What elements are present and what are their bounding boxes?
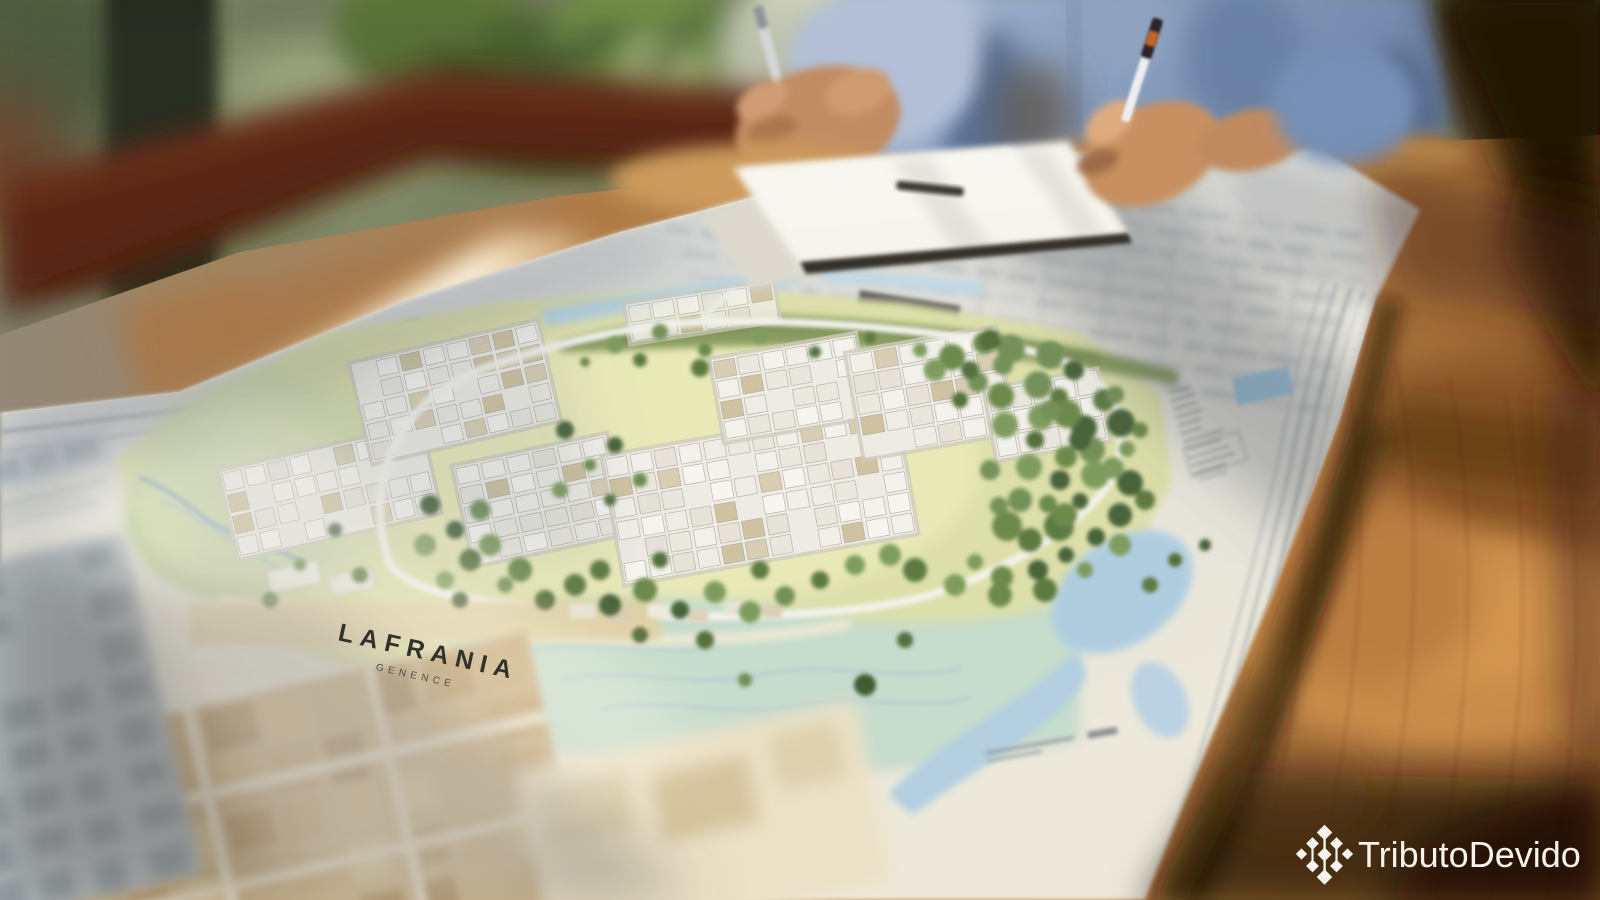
svg-text:TributoDevido: TributoDevido bbox=[1358, 834, 1581, 875]
